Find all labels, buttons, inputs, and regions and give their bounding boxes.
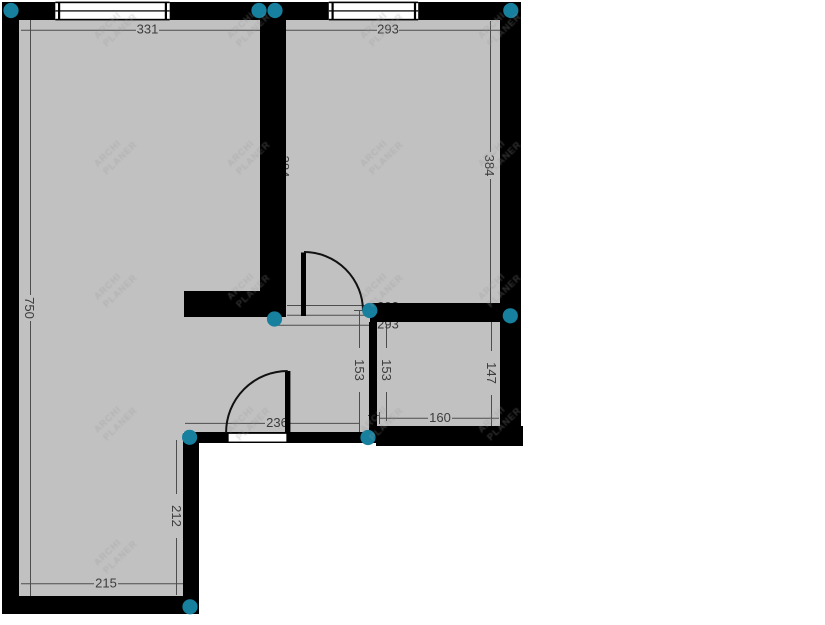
svg-text:153: 153 (352, 359, 367, 381)
svg-text:331: 331 (137, 22, 159, 37)
svg-text:215: 215 (95, 575, 117, 590)
svg-text:160: 160 (429, 410, 451, 425)
svg-text:147: 147 (484, 362, 499, 384)
svg-text:750: 750 (22, 297, 37, 319)
svg-text:212: 212 (169, 505, 184, 527)
svg-text:236: 236 (266, 415, 288, 430)
svg-text:153: 153 (379, 359, 394, 381)
